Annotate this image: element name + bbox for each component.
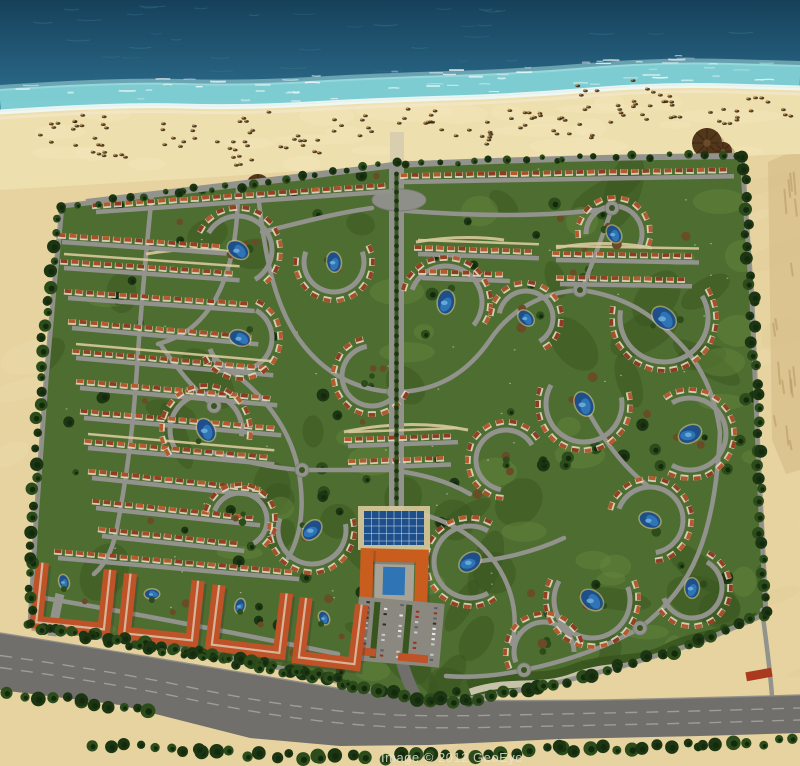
site-plan-map: Image © 2012 GeoEye	[0, 0, 800, 766]
satellite-map-viewport: Image © 2012 GeoEye	[0, 0, 800, 766]
imagery-credit-watermark: Image © 2012 GeoEye	[381, 750, 523, 765]
